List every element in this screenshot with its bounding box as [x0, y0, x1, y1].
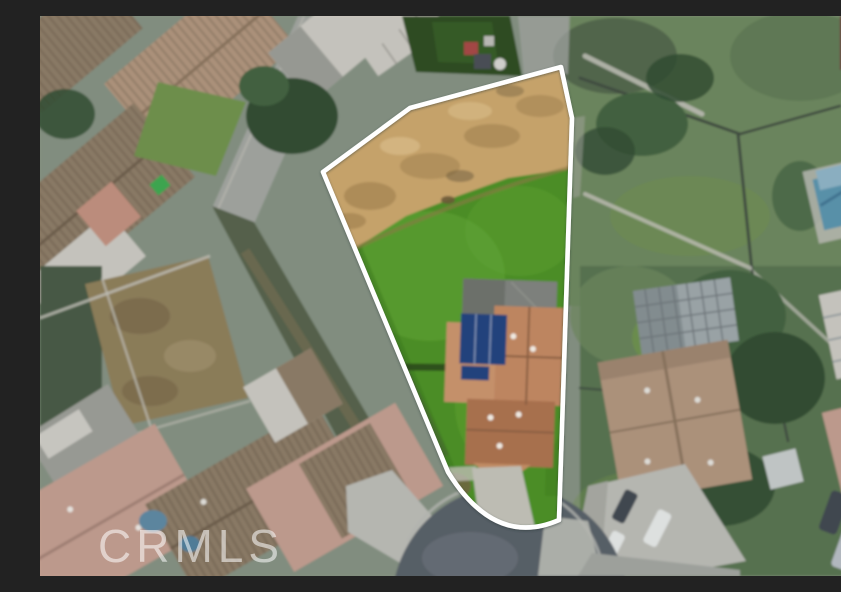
aerial-photo: CRMLS [40, 16, 841, 576]
